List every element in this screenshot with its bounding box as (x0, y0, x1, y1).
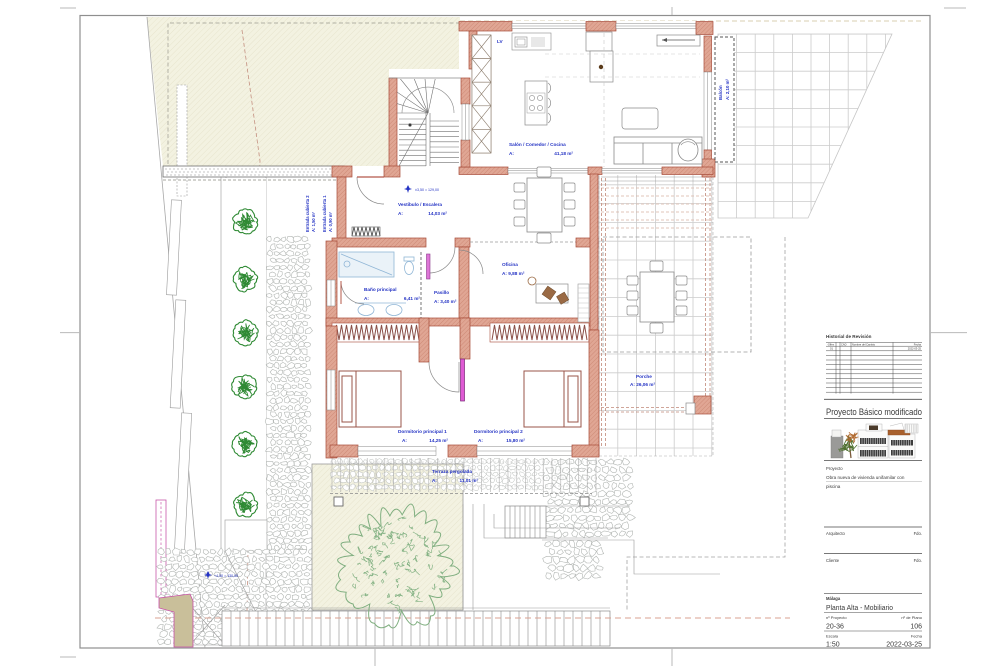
svg-text:6,41 m²: 6,41 m² (404, 296, 421, 301)
svg-text:14,03 m²: 14,03 m² (428, 211, 447, 216)
svg-text:A: 1,50 m²: A: 1,50 m² (311, 211, 316, 232)
svg-text:Dormitorio principal 2: Dormitorio principal 2 (474, 429, 523, 434)
svg-text:CAD: CAD (841, 342, 847, 346)
svg-text:A:: A: (398, 211, 403, 216)
svg-text:Escala: Escala (826, 634, 839, 639)
svg-text:Vestibulo / Escalera: Vestibulo / Escalera (398, 202, 442, 207)
svg-text:A: 9,88 m²: A: 9,88 m² (502, 271, 525, 276)
svg-text:+4,50 = 130,50: +4,50 = 130,50 (214, 574, 238, 578)
svg-text:Arquitecto: Arquitecto (826, 531, 846, 536)
svg-text:A: 0,90 m²: A: 0,90 m² (328, 211, 333, 232)
svg-text:-Offen: -Offen (827, 342, 835, 346)
svg-text:A: 3,40 m²: A: 3,40 m² (434, 299, 457, 304)
svg-text:Entrada cubierta 2: Entrada cubierta 2 (305, 195, 310, 232)
svg-text:Málaga: Málaga (826, 596, 841, 601)
svg-text:A:: A: (402, 438, 407, 443)
svg-text:Proyecto: Proyecto (826, 466, 843, 471)
svg-text:piscina: piscina (826, 484, 841, 489)
svg-text:15,80 m²: 15,80 m² (506, 438, 525, 443)
svg-text:Porche: Porche (636, 374, 652, 379)
svg-text:Fdo.: Fdo. (914, 558, 922, 563)
svg-text:Baño principal: Baño principal (364, 287, 397, 292)
svg-text:Obra nueva de vivienda unifami: Obra nueva de vivienda unifamilar con (826, 475, 905, 480)
svg-text:A: 2,10 m²: A: 2,10 m² (725, 78, 730, 100)
svg-text:nº Proyecto: nº Proyecto (826, 615, 847, 620)
svg-text:14,25 m²: 14,25 m² (429, 438, 448, 443)
svg-text:A:: A: (509, 151, 514, 156)
svg-text:1:50: 1:50 (826, 642, 840, 649)
svg-text:Pasillo: Pasillo (434, 290, 449, 295)
svg-text:Nombre del Cambio: Nombre del Cambio (852, 342, 876, 346)
svg-text:2022-03-25: 2022-03-25 (886, 642, 922, 649)
svg-text:Terraza pergolada: Terraza pergolada (432, 469, 472, 474)
svg-text:A:: A: (478, 438, 483, 443)
svg-text:106: 106 (910, 624, 922, 631)
svg-text:nº de Plano: nº de Plano (901, 615, 922, 620)
svg-text:11,01 m²: 11,01 m² (459, 478, 478, 483)
svg-text:Fecha: Fecha (911, 634, 923, 639)
svg-text:Planta Alta - Mobiliario: Planta Alta - Mobiliario (826, 603, 893, 612)
svg-text:Salón / Comedor / Cocina: Salón / Comedor / Cocina (509, 142, 566, 147)
svg-text:LV: LV (497, 39, 504, 44)
svg-text:2022-03-25: 2022-03-25 (908, 347, 922, 351)
svg-text:Fdo.: Fdo. (914, 531, 922, 536)
svg-text:Entrada cubierta 1: Entrada cubierta 1 (322, 195, 327, 232)
svg-text:Cliente: Cliente (826, 558, 840, 563)
svg-text:Oficina: Oficina (502, 262, 518, 267)
svg-text:Historial de Revisión: Historial de Revisión (826, 334, 872, 339)
svg-text:Dormitorio principal 1: Dormitorio principal 1 (398, 429, 447, 434)
svg-text:±3,50 = 129,00: ±3,50 = 129,00 (415, 188, 439, 192)
svg-text:A:: A: (432, 478, 437, 483)
svg-text:A:: A: (364, 296, 369, 301)
svg-text:41,18 m²: 41,18 m² (554, 151, 573, 156)
svg-text:20-36: 20-36 (826, 624, 844, 631)
svg-text:Balcón: Balcón (718, 85, 723, 100)
svg-text:A: 26,06 m²: A: 26,06 m² (630, 382, 655, 387)
svg-text:Proyecto Básico modificado: Proyecto Básico modificado (826, 407, 922, 417)
svg-text:Fecha: Fecha (914, 342, 922, 346)
